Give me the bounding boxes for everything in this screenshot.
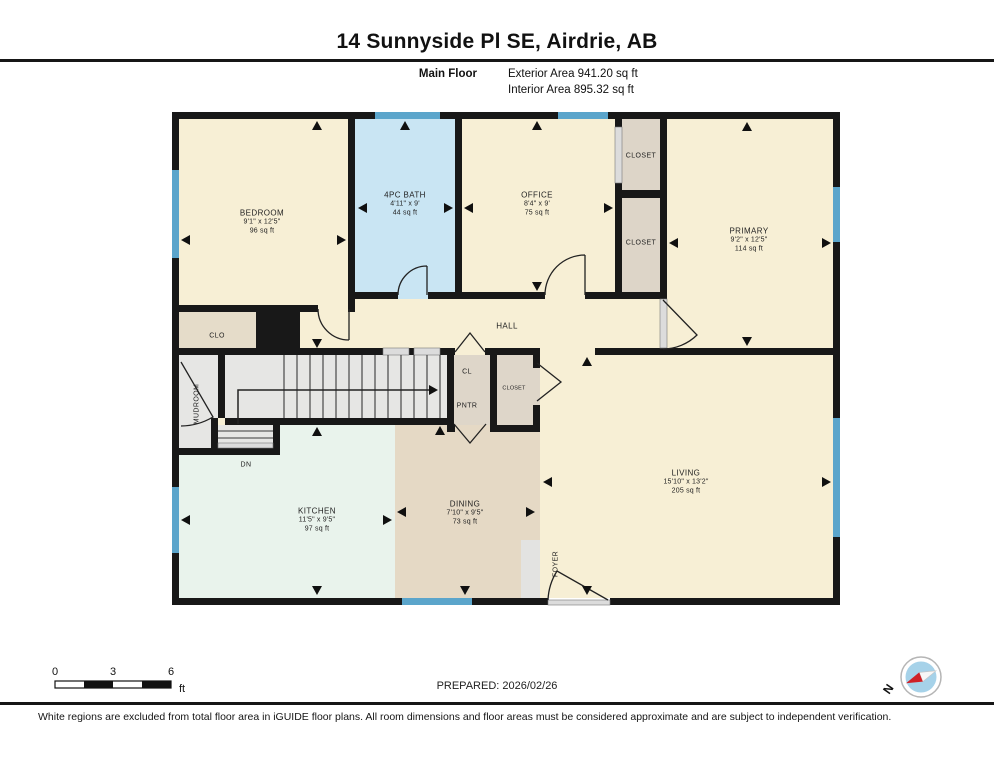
room-label-dining: DINING 7'10" x 9'5" 73 sq ft: [447, 500, 484, 527]
room-label-hall: HALL: [496, 322, 518, 331]
room-label-clo: CLO: [209, 332, 225, 341]
floorplan-drawing: [0, 0, 994, 768]
room-label-bath: 4PC BATH 4'11" x 9' 44 sq ft: [384, 191, 426, 218]
room-label-cl: CL: [462, 368, 472, 377]
scale-tick-3: 3: [110, 666, 116, 678]
room-label-bedroom: BEDROOM 9'1" x 12'5" 96 sq ft: [240, 209, 284, 236]
room-label-kitchen: KITCHEN 11'5" x 9'5" 97 sq ft: [298, 507, 336, 534]
room-label-closet-small: CLOSET: [502, 385, 525, 394]
room-label-living: LIVING 15'10" x 13'2" 205 sq ft: [663, 469, 708, 496]
prepared-date: PREPARED: 2026/02/26: [0, 680, 994, 692]
room-label-primary: PRIMARY 9'2" x 12'5" 114 sq ft: [729, 227, 768, 254]
room-label-pntr: PNTR: [457, 402, 478, 411]
room-label-mudroom: MUDROOM: [193, 384, 202, 425]
stairs-dn-label: DN: [241, 461, 252, 470]
room-floors: [179, 119, 833, 598]
scale-tick-0: 0: [52, 666, 58, 678]
disclaimer-text: White regions are excluded from total fl…: [38, 711, 968, 723]
room-label-foyer: FOYER: [552, 551, 561, 577]
scale-tick-6: 6: [168, 666, 174, 678]
footer-divider: [0, 702, 994, 705]
floor-closet-mid: [622, 198, 660, 299]
foyer-step: [521, 540, 540, 598]
room-label-office: OFFICE 8'4" x 9' 75 sq ft: [521, 191, 553, 218]
room-label-closet-mid: CLOSET: [626, 239, 656, 248]
floorplan-page: 14 Sunnyside Pl SE, Airdrie, AB Main Flo…: [0, 0, 994, 768]
room-label-closet-top: CLOSET: [626, 152, 656, 161]
